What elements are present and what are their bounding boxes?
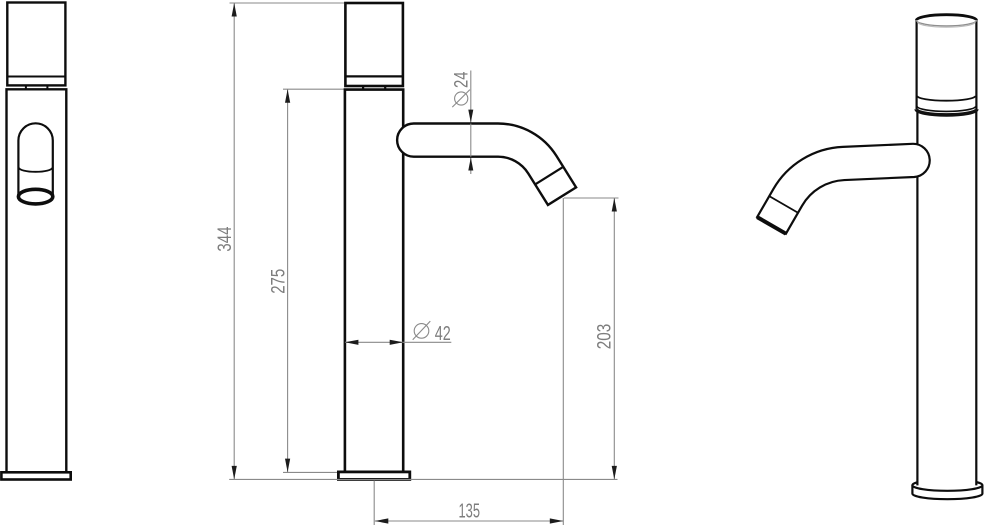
svg-text:135: 135 bbox=[459, 501, 481, 523]
svg-text:203: 203 bbox=[594, 324, 615, 350]
svg-text:344: 344 bbox=[215, 226, 236, 251]
svg-text:42: 42 bbox=[435, 323, 451, 345]
svg-text:275: 275 bbox=[268, 269, 289, 294]
svg-text:24: 24 bbox=[451, 71, 472, 88]
